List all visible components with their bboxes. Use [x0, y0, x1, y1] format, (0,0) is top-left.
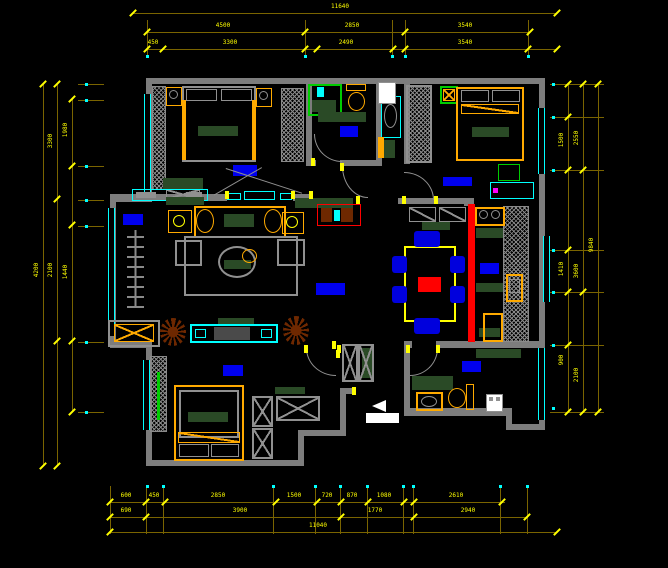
dim-label: 1980 [63, 123, 69, 137]
dim-label: 11040 [309, 523, 327, 529]
room-name-label [443, 177, 472, 186]
closet-box [342, 344, 358, 382]
dim-ext-line [550, 292, 604, 293]
sofa-arm [196, 209, 214, 233]
window [538, 348, 545, 420]
shower-bench [312, 100, 336, 112]
room-name-label [316, 283, 345, 295]
axis-dot [526, 485, 529, 488]
door-hinge-mark [356, 196, 360, 204]
axis-dot [412, 485, 415, 488]
burner [491, 210, 500, 219]
door-arc [342, 166, 368, 198]
cabinet [412, 376, 453, 390]
potted-plant [283, 316, 309, 345]
axis-dot [552, 344, 555, 347]
axis-dot [366, 485, 369, 488]
desk-chair [498, 164, 520, 181]
toilet-bowl [348, 92, 365, 111]
door-hinge-mark [406, 345, 410, 353]
door-hinge-mark [340, 163, 344, 171]
bed-blanket [178, 432, 240, 443]
sink-basin [509, 279, 520, 293]
dim-line [133, 13, 557, 14]
hatched-cabinet [281, 88, 304, 162]
nightstand-lamp [259, 91, 268, 100]
floor-plan-canvas: 1164045002850354045033002490354060045028… [0, 0, 668, 568]
dim-line [57, 84, 58, 466]
axis-dot [304, 55, 307, 58]
bed-pillow [198, 126, 238, 136]
dim-label: 1410 [559, 262, 565, 276]
axis-dot [314, 485, 317, 488]
console-decor [341, 208, 353, 222]
window [543, 236, 550, 302]
door-hinge-mark [304, 345, 308, 353]
plant-vine [157, 372, 160, 420]
window [143, 360, 150, 430]
dining-chair [392, 256, 407, 273]
room-name-label [480, 263, 499, 274]
console-decor [334, 210, 340, 221]
axis-dot [85, 199, 88, 202]
window [108, 208, 115, 336]
dim-ext-line [78, 412, 104, 413]
door-arc [306, 348, 336, 376]
sliding-door-panel [244, 191, 275, 200]
dim-line [598, 84, 599, 412]
dim-ext-line [273, 486, 274, 534]
nightstand-lamp [169, 90, 178, 99]
dim-label: 11640 [331, 4, 349, 10]
window [538, 108, 545, 174]
dim-tick [553, 45, 561, 53]
dining-chair [414, 231, 440, 247]
dim-label: 2610 [449, 493, 463, 499]
dim-label: 870 [347, 493, 358, 499]
axis-dot [85, 83, 88, 86]
dim-ext-line [78, 200, 104, 201]
desk-item [493, 188, 498, 193]
door-arc [404, 172, 434, 200]
side-table [242, 249, 257, 263]
dim-ext-line [550, 345, 604, 346]
dim-label: 900 [559, 355, 565, 366]
closet-box [358, 344, 374, 382]
wall [298, 430, 346, 436]
dim-line [147, 49, 557, 50]
dim-ext-line [78, 84, 104, 85]
axis-dot [85, 165, 88, 168]
dining-chair [450, 256, 465, 273]
dim-tick [53, 462, 61, 470]
dining-chair [392, 286, 407, 303]
dim-label: 4200 [34, 263, 40, 277]
dim-tick [39, 462, 47, 470]
axis-dot [552, 116, 555, 119]
wardrobe-box [252, 396, 273, 427]
washer-knob [489, 397, 493, 401]
door-hinge-mark [332, 341, 336, 349]
duct-shaft [378, 82, 396, 104]
dim-ext-line [413, 486, 414, 534]
dim-label: 9840 [589, 238, 595, 252]
tv-cabinet-box [195, 329, 206, 338]
axis-dot [391, 55, 394, 58]
entry-arrow [372, 400, 386, 412]
door-hinge-mark [434, 196, 438, 204]
axis-dot [85, 411, 88, 414]
dim-label: 1500 [559, 133, 565, 147]
dim-label: 3540 [458, 23, 472, 29]
hall-cabinet-door [136, 192, 156, 198]
dim-label: 720 [322, 493, 333, 499]
dim-ext-line [78, 166, 104, 167]
vanity-cabinet [318, 112, 366, 122]
washer-knob [496, 397, 500, 401]
door-hinge-mark [402, 196, 406, 204]
axis-dot [146, 55, 149, 58]
dim-tick [68, 408, 76, 416]
axis-dot [552, 249, 555, 252]
dim-line [110, 517, 527, 518]
bed-headboard-left [461, 90, 489, 102]
bed-drawer [211, 444, 239, 457]
dim-label: 3300 [48, 134, 54, 148]
dim-ext-line [550, 117, 604, 118]
dim-ext-line [78, 342, 104, 343]
dim-label: 3900 [233, 508, 247, 514]
wall [340, 388, 346, 434]
dim-line [110, 502, 505, 503]
glass-cabinet [439, 207, 466, 222]
dim-label: 600 [121, 493, 132, 499]
dim-line [72, 99, 73, 412]
dim-label: 1770 [368, 508, 382, 514]
counter [476, 228, 503, 238]
axis-dot [339, 485, 342, 488]
dim-label: 2100 [574, 368, 580, 382]
door-hinge-mark [309, 191, 313, 199]
sofa-arm [264, 209, 282, 233]
dim-label: 690 [121, 508, 132, 514]
door-hinge-mark [352, 387, 356, 395]
toilet-tank [466, 384, 474, 410]
door-hinge-mark [337, 345, 341, 353]
axis-dot [146, 485, 149, 488]
dim-ext-line [110, 486, 111, 534]
bed-headboard-left [186, 89, 217, 101]
tv [214, 327, 250, 340]
window [144, 94, 151, 192]
dim-line [583, 84, 584, 412]
washbasin [384, 104, 397, 128]
hatched-cabinet [152, 86, 166, 190]
axis-dot [162, 485, 165, 488]
dim-tick [553, 9, 561, 17]
dining-centerpiece [418, 277, 441, 292]
axis-dot [85, 225, 88, 228]
wardrobe-frame [406, 85, 432, 163]
wardrobe-box [252, 428, 273, 459]
entry-mat [366, 413, 399, 423]
toilet-bowl [448, 388, 466, 408]
axis-dot [85, 99, 88, 102]
axis-dot [552, 407, 555, 410]
dim-label: 2850 [345, 23, 359, 29]
room-name-label [123, 214, 143, 225]
dim-ext-line [340, 486, 341, 534]
dim-ext-line [403, 486, 404, 534]
axis-dot [402, 485, 405, 488]
dim-label: 2490 [339, 40, 353, 46]
shelf [275, 387, 305, 394]
door-hinge-mark [311, 158, 315, 166]
burner [479, 210, 488, 219]
axis-dot [272, 485, 275, 488]
shelf [422, 222, 450, 230]
dim-label: 2850 [211, 493, 225, 499]
bench [163, 178, 203, 189]
dim-ext-line [528, 20, 529, 56]
potted-plant [160, 318, 186, 346]
bed-pillow [472, 127, 509, 137]
dim-ext-line [550, 170, 604, 171]
door-hinge-mark [291, 191, 295, 199]
wardrobe-box [276, 396, 320, 421]
bed-pillow [188, 412, 228, 422]
dim-ext-line [147, 20, 148, 56]
sofa-cushion [224, 214, 254, 227]
dim-label: 1440 [63, 265, 69, 279]
dim-label: 3300 [223, 40, 237, 46]
coat-rack [127, 230, 144, 308]
dim-tick [553, 528, 561, 536]
dim-ext-line [527, 486, 528, 534]
bed-drawer [179, 444, 209, 457]
bed-blanket [461, 104, 519, 114]
console-decor [321, 208, 332, 222]
bench [476, 349, 521, 358]
sliding-door-panel [227, 193, 241, 200]
washbasin [421, 396, 437, 407]
dim-label: 2550 [574, 131, 580, 145]
dim-label: 3600 [574, 264, 580, 278]
dim-ext-line [146, 486, 147, 534]
axis-dot [552, 169, 555, 172]
dim-label: 1080 [377, 493, 391, 499]
balcony-table-top [114, 324, 154, 342]
dim-label: 2100 [48, 263, 54, 277]
feature-wall [468, 204, 475, 342]
dim-label: 450 [148, 40, 159, 46]
door-arc [410, 348, 438, 376]
bed-headboard-right [221, 89, 252, 101]
dim-label: 2940 [461, 508, 475, 514]
dim-label: 450 [149, 493, 160, 499]
axis-dot [552, 291, 555, 294]
room-name-label [462, 361, 481, 372]
table-lamp [173, 215, 185, 227]
dim-label: 1500 [287, 493, 301, 499]
shower-head [317, 87, 324, 97]
dim-ext-line [163, 486, 164, 534]
bench [166, 197, 204, 205]
axis-dot [85, 341, 88, 344]
bed-headboard-right [492, 90, 520, 102]
toilet-tank [346, 84, 366, 91]
door-hinge-mark [225, 191, 229, 199]
dim-label: 4500 [216, 23, 230, 29]
appliance [483, 313, 503, 342]
plant [443, 89, 455, 101]
dim-line [110, 532, 557, 533]
wall [436, 341, 540, 348]
axis-dot [552, 83, 555, 86]
dim-ext-line [305, 20, 306, 56]
cabinet [383, 140, 395, 158]
dim-label: 3540 [458, 40, 472, 46]
axis-dot [404, 55, 407, 58]
dining-chair [450, 286, 465, 303]
table-lamp [286, 216, 298, 228]
dim-ext-line [550, 250, 604, 251]
dim-ext-line [78, 226, 104, 227]
tv-cabinet-box [261, 329, 272, 338]
counter [476, 283, 503, 292]
dim-line [147, 32, 530, 33]
axis-dot [499, 485, 502, 488]
room-name-label [223, 365, 243, 376]
dim-ext-line [78, 100, 104, 101]
dim-line [43, 84, 44, 466]
bed-rail-right [252, 100, 256, 160]
axis-dot [527, 55, 530, 58]
dim-ext-line [405, 20, 406, 56]
dining-chair [414, 318, 440, 334]
door-jamb [378, 137, 384, 158]
room-name-label [340, 126, 358, 137]
door-hinge-mark [436, 345, 440, 353]
bed-rail-left [182, 100, 186, 160]
glass-cabinet [409, 207, 436, 222]
door-arc [314, 134, 342, 162]
dim-ext-line [500, 486, 501, 534]
